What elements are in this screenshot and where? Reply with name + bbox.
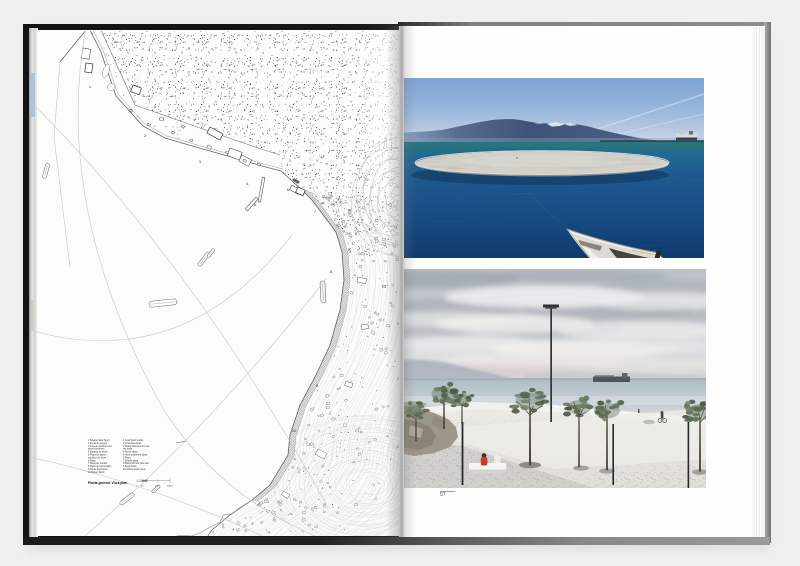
svg-text:8 Plaza with low pine belt: 8 Plaza with low pine belt bbox=[123, 462, 149, 465]
svg-text:6.: 6. bbox=[287, 188, 290, 192]
svg-text:4 Picnic space: 4 Picnic space bbox=[123, 452, 139, 454]
svg-text:1 Bosque Sesli Sport: 1 Bosque Sesli Sport bbox=[88, 439, 110, 442]
svg-text:3 Area de sombra entre: 3 Area de sombra entre bbox=[88, 445, 113, 448]
svg-text:5 Vlore waterfront plaza: 5 Vlore waterfront plaza bbox=[123, 454, 148, 457]
svg-text:9.: 9. bbox=[316, 384, 319, 388]
svg-text:4.: 4. bbox=[246, 182, 249, 186]
svg-text:200m: 200m bbox=[167, 486, 173, 488]
svg-text:1 Sesli Sport woods: 1 Sesli Sport woods bbox=[123, 439, 144, 442]
svg-text:6 Plaza: 6 Plaza bbox=[123, 457, 131, 459]
svg-text:6 Plaza: 6 Plaza bbox=[88, 460, 96, 462]
svg-text:4 Espacio de picnic: 4 Espacio de picnic bbox=[88, 452, 109, 454]
svg-text:5.: 5. bbox=[254, 203, 257, 207]
svg-text:50: 50 bbox=[141, 486, 144, 488]
svg-text:the kiosk: the kiosk bbox=[123, 448, 133, 451]
svg-text:10 Infants beach area: 10 Infants beach area bbox=[123, 468, 146, 471]
svg-text:1.: 1. bbox=[89, 85, 92, 89]
svg-text:8.: 8. bbox=[330, 270, 333, 274]
svg-text:Planta general. Vlora plan: Planta general. Vlora plan bbox=[88, 481, 127, 485]
svg-text:7.: 7. bbox=[314, 210, 317, 214]
svg-text:3 Shady area around new: 3 Shady area around new bbox=[123, 445, 150, 448]
svg-text:2 Amenities areas: 2 Amenities areas bbox=[123, 442, 142, 445]
svg-text:3.: 3. bbox=[199, 160, 202, 164]
svg-text:2.: 2. bbox=[144, 134, 147, 138]
svg-text:10 Plaza infantil: 10 Plaza infantil bbox=[88, 471, 105, 474]
svg-text:8 Plaza de pinos bajos: 8 Plaza de pinos bajos bbox=[88, 466, 112, 468]
svg-text:7 Plaza las rendas: 7 Plaza las rendas bbox=[88, 462, 108, 465]
svg-text:9 Zonas deportivas: 9 Zonas deportivas bbox=[88, 468, 108, 471]
svg-text:pinos existentes: pinos existentes bbox=[88, 448, 105, 451]
svg-text:maritimo de Vlore: maritimo de Vlore bbox=[88, 456, 107, 459]
svg-text:10.: 10. bbox=[292, 429, 297, 433]
svg-text:9 Sport fields: 9 Sport fields bbox=[123, 465, 137, 468]
svg-text:2 Zonas de juegos: 2 Zonas de juegos bbox=[88, 443, 108, 445]
svg-text:7 Rendis plaza: 7 Rendis plaza bbox=[123, 460, 139, 462]
svg-text:5 Plaza del paseo: 5 Plaza del paseo bbox=[88, 455, 107, 457]
